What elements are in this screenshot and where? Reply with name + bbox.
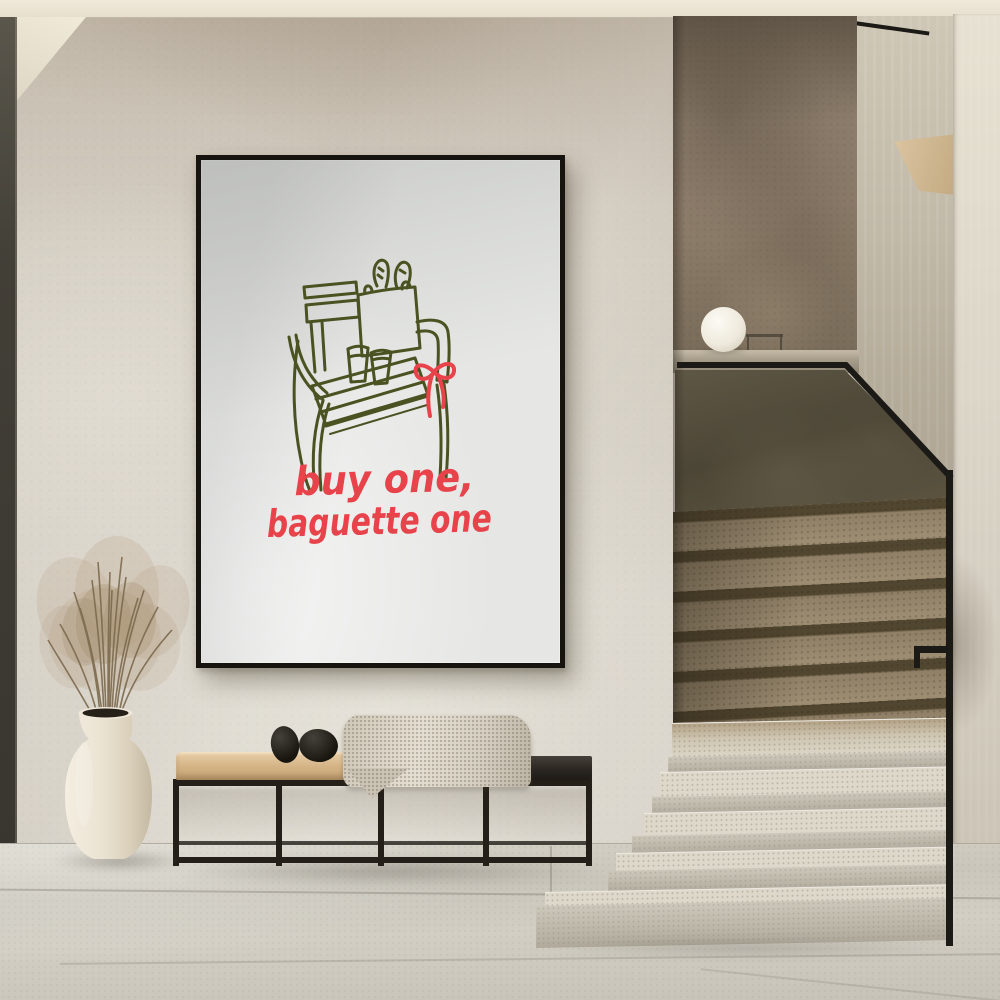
sphere-lamp	[701, 307, 746, 352]
bench-leg	[378, 784, 384, 866]
bench-leg	[276, 784, 282, 866]
bench-leg	[483, 784, 489, 866]
stair-base-shadow	[540, 940, 950, 956]
stair-opening-edge-shadow	[673, 16, 685, 756]
poster-text: buy one, baguette one	[265, 454, 492, 546]
handrail-horizontal	[677, 362, 847, 368]
bench-bottom-rail	[173, 857, 592, 863]
right-wall-column	[953, 14, 1000, 940]
stair-upper-wall-texture	[673, 16, 857, 352]
vase-highlight	[75, 742, 93, 826]
framed-poster: buy one, baguette one	[196, 155, 565, 668]
interior-scene: buy one, baguette one	[0, 0, 1000, 1000]
vase-with-dried-grass	[22, 532, 218, 872]
bench-leg	[586, 784, 592, 866]
handrail-post	[946, 470, 953, 946]
handrail-end-hook	[914, 646, 920, 668]
vase-mouth	[83, 709, 129, 718]
dark-door-edge	[0, 17, 17, 848]
poster-artwork: buy one, baguette one	[201, 160, 560, 663]
poster-line2: baguette one	[266, 496, 492, 546]
ledge-table	[746, 334, 783, 337]
